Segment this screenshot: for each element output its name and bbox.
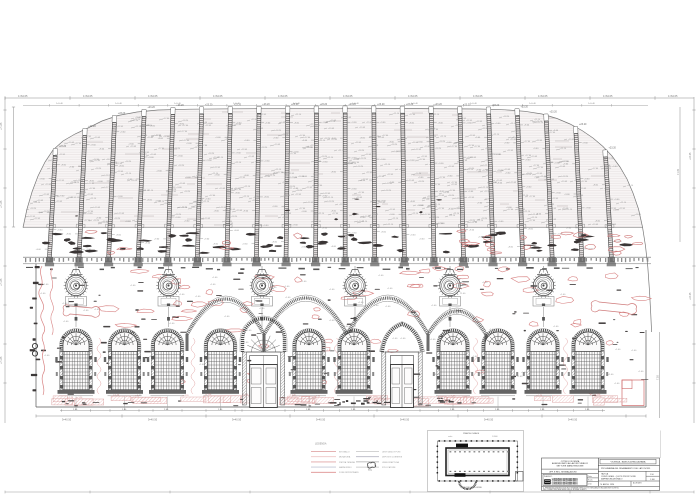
svg-text:+21.10: +21.10 — [522, 195, 529, 197]
svg-text:+17.64: +17.64 — [358, 192, 365, 194]
svg-text:+18.20: +18.20 — [358, 150, 365, 152]
svg-text:PIANTA CHIAVE: PIANTA CHIAVE — [463, 432, 480, 435]
svg-text:+17.64: +17.64 — [299, 208, 306, 210]
svg-text:+19.43: +19.43 — [118, 213, 125, 215]
svg-text:+19.43: +19.43 — [568, 139, 575, 141]
svg-text:+21.10: +21.10 — [453, 213, 460, 215]
svg-text:+18.20: +18.20 — [182, 120, 189, 122]
svg-text:+9.60: +9.60 — [272, 206, 278, 208]
svg-text:+22.05: +22.05 — [227, 223, 234, 225]
svg-text:+1.40: +1.40 — [329, 289, 335, 291]
svg-text:+9.60: +9.60 — [158, 138, 164, 140]
svg-text:+23.20: +23.20 — [59, 145, 67, 148]
svg-text:+18.20: +18.20 — [486, 175, 493, 177]
svg-text:+17.64: +17.64 — [562, 161, 569, 163]
svg-text:+22.05: +22.05 — [372, 214, 379, 216]
svg-text:+9.60: +9.60 — [505, 173, 511, 175]
svg-text:+9.60: +9.60 — [215, 137, 221, 139]
svg-text:+7.145: +7.145 — [0, 278, 3, 286]
svg-text:+22.05: +22.05 — [53, 196, 60, 198]
svg-text:+19.43: +19.43 — [504, 169, 511, 171]
svg-text:+22.05: +22.05 — [324, 193, 331, 195]
svg-text:+9.60: +9.60 — [175, 217, 181, 219]
svg-text:+17.64: +17.64 — [537, 167, 544, 169]
svg-text:+9.60: +9.60 — [177, 155, 183, 157]
svg-text:+9.60: +9.60 — [148, 157, 154, 159]
svg-text:+9.60: +9.60 — [466, 123, 472, 125]
svg-text:+19.43: +19.43 — [366, 122, 373, 124]
svg-text:+1.40: +1.40 — [169, 323, 175, 325]
svg-text:+9.60: +9.60 — [351, 232, 357, 234]
svg-text:+21.10: +21.10 — [318, 213, 325, 215]
svg-text:1=5.40: 1=5.40 — [115, 103, 123, 105]
svg-text:+9.60: +9.60 — [99, 149, 105, 151]
svg-text:+18.20: +18.20 — [51, 168, 58, 170]
svg-text:5=40.50: 5=40.50 — [232, 419, 242, 422]
svg-text:+17.64: +17.64 — [581, 181, 588, 183]
svg-text:+19.43: +19.43 — [219, 188, 226, 190]
svg-text:+9.60: +9.60 — [147, 199, 153, 201]
svg-text:+17.64: +17.64 — [209, 195, 216, 197]
svg-text:+1.40: +1.40 — [63, 321, 69, 323]
svg-text:+23.20: +23.20 — [147, 106, 155, 109]
svg-text:rc 1.20: rc 1.20 — [183, 394, 189, 397]
svg-text:5=40.50: 5=40.50 — [484, 419, 494, 422]
svg-text:+22.05: +22.05 — [412, 142, 419, 144]
svg-text:+22.05: +22.05 — [466, 120, 473, 122]
svg-text:rc 1.20: rc 1.20 — [113, 393, 119, 396]
svg-text:+17.64: +17.64 — [89, 188, 96, 190]
svg-text:+22.05: +22.05 — [448, 166, 455, 168]
svg-text:+18.20: +18.20 — [321, 156, 328, 158]
svg-text:+22.05: +22.05 — [315, 161, 322, 163]
svg-text:+22.05: +22.05 — [389, 209, 396, 211]
svg-text:+19.43: +19.43 — [213, 157, 220, 159]
svg-text:+21.10: +21.10 — [181, 207, 188, 209]
svg-text:+17.64: +17.64 — [491, 182, 498, 184]
svg-text:+23.20: +23.20 — [406, 103, 414, 106]
svg-text:+22.05: +22.05 — [395, 151, 402, 153]
svg-text:+21.10: +21.10 — [510, 123, 517, 125]
svg-text:+17.64: +17.64 — [158, 148, 165, 150]
svg-text:+19.43: +19.43 — [364, 216, 371, 218]
svg-text:CURVE GRADI - QUOTE PROSP. NOR: CURVE GRADI - QUOTE PROSP. NORD — [601, 475, 637, 478]
svg-text:+18.20: +18.20 — [324, 138, 331, 140]
svg-text:+21.10: +21.10 — [136, 219, 143, 221]
svg-text:+18.20: +18.20 — [175, 214, 182, 216]
svg-text:+24.05: +24.05 — [689, 292, 692, 300]
svg-text:+18.20: +18.20 — [296, 190, 303, 192]
svg-text:+9.60: +9.60 — [351, 122, 357, 124]
svg-text:+18.20: +18.20 — [435, 148, 442, 150]
svg-text:+21.10: +21.10 — [158, 201, 165, 203]
svg-text:+23.20: +23.20 — [118, 112, 126, 115]
svg-text:+21.10: +21.10 — [433, 114, 440, 116]
svg-text:+19.43: +19.43 — [515, 130, 522, 132]
svg-text:+9.60: +9.60 — [322, 161, 328, 163]
svg-text:+9.60: +9.60 — [418, 177, 424, 179]
svg-text:+1.40: +1.40 — [83, 310, 89, 312]
svg-text:+9.60: +9.60 — [244, 140, 250, 142]
svg-text:rc 1.20: rc 1.20 — [76, 396, 82, 399]
svg-text:+1.40: +1.40 — [387, 288, 393, 290]
svg-text:1=64.05: 1=64.05 — [538, 94, 548, 98]
svg-text:+19.43: +19.43 — [87, 194, 94, 196]
svg-text:+22.05: +22.05 — [536, 173, 543, 175]
svg-text:+17.64: +17.64 — [84, 220, 91, 222]
svg-text:+9.60: +9.60 — [87, 213, 93, 215]
svg-text:+18.20: +18.20 — [125, 161, 132, 163]
svg-text:+23.20: +23.20 — [579, 123, 587, 126]
svg-text:+9.60: +9.60 — [446, 142, 452, 144]
svg-text:+21.10: +21.10 — [361, 221, 368, 223]
svg-text:+18.20: +18.20 — [429, 128, 436, 130]
svg-text:+19.43: +19.43 — [548, 204, 555, 206]
svg-text:rc 1.20: rc 1.20 — [449, 394, 455, 397]
svg-text:+19.43: +19.43 — [195, 205, 202, 207]
svg-text:MURATURA: MURATURA — [339, 456, 351, 459]
svg-text:+23.20: +23.20 — [609, 147, 617, 150]
svg-text:+17.64: +17.64 — [230, 125, 237, 127]
svg-text:scala: scala — [448, 436, 452, 438]
svg-text:+17.64: +17.64 — [141, 117, 148, 119]
svg-text:+9.60: +9.60 — [117, 196, 123, 198]
svg-text:+17.64: +17.64 — [524, 141, 531, 143]
svg-text:+9.60: +9.60 — [97, 181, 103, 183]
svg-text:+9.60: +9.60 — [36, 249, 42, 251]
svg-text:+9.60: +9.60 — [614, 199, 620, 201]
svg-text:+19.43: +19.43 — [592, 224, 599, 226]
svg-text:+24.05: +24.05 — [689, 152, 692, 160]
svg-text:+19.43: +19.43 — [179, 183, 186, 185]
svg-text:+21.10: +21.10 — [327, 157, 334, 159]
svg-text:+17.64: +17.64 — [549, 132, 556, 134]
svg-text:+17.64: +17.64 — [192, 207, 199, 209]
svg-text:+23.20: +23.20 — [492, 104, 500, 107]
svg-text:1=5.40: 1=5.40 — [56, 103, 64, 105]
svg-text:+22.05: +22.05 — [619, 208, 626, 210]
svg-text:+9.60: +9.60 — [526, 186, 532, 188]
svg-text:+21.10: +21.10 — [203, 201, 210, 203]
svg-text:+18.20: +18.20 — [93, 220, 100, 222]
svg-text:LEGENDA: LEGENDA — [315, 443, 327, 446]
svg-text:+18.20: +18.20 — [174, 148, 181, 150]
svg-text:+18.20: +18.20 — [184, 191, 191, 193]
svg-text:rc 1.20: rc 1.20 — [133, 394, 139, 397]
svg-text:+23.20: +23.20 — [234, 103, 242, 106]
svg-text:+19.43: +19.43 — [248, 156, 255, 158]
svg-text:+19.43: +19.43 — [283, 122, 290, 124]
svg-text:+17.64: +17.64 — [439, 177, 446, 179]
svg-text:+9.60: +9.60 — [243, 211, 249, 213]
svg-text:+9.60: +9.60 — [566, 228, 572, 230]
svg-text:+18.20: +18.20 — [525, 174, 532, 176]
svg-text:1=64.05: 1=64.05 — [213, 94, 223, 98]
svg-text:+19.43: +19.43 — [353, 159, 360, 161]
svg-text:+19.43: +19.43 — [559, 166, 566, 168]
svg-text:5=40.50: 5=40.50 — [148, 419, 158, 422]
svg-text:+21.10: +21.10 — [143, 190, 150, 192]
svg-text:+23.20: +23.20 — [549, 111, 557, 114]
svg-text:+17.64: +17.64 — [201, 145, 208, 147]
svg-text:+18.20: +18.20 — [485, 148, 492, 150]
svg-text:+17.64: +17.64 — [155, 135, 162, 137]
svg-text:+19.43: +19.43 — [550, 208, 557, 210]
svg-text:+22.05: +22.05 — [143, 152, 150, 154]
svg-text:+23.20: +23.20 — [205, 104, 213, 107]
svg-text:+18.20: +18.20 — [131, 180, 138, 182]
svg-text:+19.43: +19.43 — [236, 210, 243, 212]
svg-text:+18.20: +18.20 — [43, 211, 50, 213]
svg-text:+22.05: +22.05 — [476, 121, 483, 123]
svg-text:+19.43: +19.43 — [252, 200, 259, 202]
svg-text:DEL COMMITTENTE AI SENSI DELLE: DEL COMMITTENTE AI SENSI DELLE NORME VIG… — [543, 488, 587, 491]
svg-text:+21.10: +21.10 — [566, 209, 573, 211]
svg-text:+21.10: +21.10 — [392, 218, 399, 220]
svg-text:+18.20: +18.20 — [485, 160, 492, 162]
svg-text:+9.60: +9.60 — [533, 148, 539, 150]
svg-text:+9.60: +9.60 — [116, 234, 122, 236]
svg-text:+9.60: +9.60 — [381, 232, 387, 234]
svg-text:+9.60: +9.60 — [419, 239, 425, 241]
svg-text:+9.60: +9.60 — [475, 137, 481, 139]
svg-text:+1.40: +1.40 — [44, 355, 50, 357]
svg-text:+17.64: +17.64 — [449, 190, 456, 192]
svg-text:+1.40: +1.40 — [385, 306, 391, 308]
svg-text:+1.40: +1.40 — [246, 330, 252, 332]
svg-text:5=40.50: 5=40.50 — [568, 419, 578, 422]
svg-text:+18.20: +18.20 — [255, 161, 262, 163]
svg-text:+9.60: +9.60 — [380, 159, 386, 161]
svg-text:+17.64: +17.64 — [545, 221, 552, 223]
svg-text:+22.05: +22.05 — [552, 198, 559, 200]
svg-text:+9.60: +9.60 — [184, 220, 190, 222]
svg-text:+18.20: +18.20 — [275, 130, 282, 132]
svg-text:+22.05: +22.05 — [117, 171, 124, 173]
svg-text:+9.60: +9.60 — [61, 165, 67, 167]
svg-text:+9.60: +9.60 — [156, 170, 162, 172]
svg-text:+19.43: +19.43 — [580, 188, 587, 190]
svg-text:+1.40: +1.40 — [301, 281, 307, 283]
svg-text:+1.40: +1.40 — [224, 316, 230, 318]
svg-text:+1.40: +1.40 — [431, 305, 437, 307]
svg-text:PIETRA TENERA: PIETRA TENERA — [339, 461, 355, 464]
svg-text:+19.43: +19.43 — [457, 207, 464, 209]
svg-text:+22.05: +22.05 — [102, 221, 109, 223]
svg-text:+18.20: +18.20 — [469, 220, 476, 222]
svg-text:+9.60: +9.60 — [235, 193, 241, 195]
svg-text:+22.05: +22.05 — [604, 188, 611, 190]
svg-text:+18.20: +18.20 — [284, 195, 291, 197]
svg-text:+19.43: +19.43 — [94, 137, 101, 139]
svg-text:+21.10: +21.10 — [484, 165, 491, 167]
svg-text:1=64.05: 1=64.05 — [343, 94, 353, 98]
svg-text:+22.05: +22.05 — [379, 202, 386, 204]
svg-text:+9.60: +9.60 — [69, 166, 75, 168]
svg-text:+18.20: +18.20 — [391, 144, 398, 146]
svg-text:+19.43: +19.43 — [561, 181, 568, 183]
svg-text:PROGRAMMA DEL RISANAMENTO DEL: PROGRAMMA DEL RISANAMENTO DEL LATO NORD — [601, 467, 651, 470]
svg-text:+21.10: +21.10 — [319, 140, 326, 142]
svg-text:+17.64: +17.64 — [592, 168, 599, 170]
svg-text:+19.43: +19.43 — [386, 183, 393, 185]
svg-text:rc 1.20: rc 1.20 — [67, 396, 73, 399]
svg-text:CONSORZIO ARTIGIANI REST.: CONSORZIO ARTIGIANI REST. — [552, 482, 579, 485]
svg-text:+18.20: +18.20 — [164, 203, 171, 205]
svg-text:+21.10: +21.10 — [243, 196, 250, 198]
svg-text:1=5.40: 1=5.40 — [588, 103, 596, 105]
svg-text:5=40.50: 5=40.50 — [400, 419, 410, 422]
svg-text:1:100: 1:100 — [650, 479, 655, 481]
svg-text:rc 1.20: rc 1.20 — [595, 395, 601, 398]
svg-text:+9.60: +9.60 — [528, 228, 534, 230]
svg-text:+22.05: +22.05 — [547, 162, 554, 164]
svg-text:+19.43: +19.43 — [456, 198, 463, 200]
svg-text:+22.05: +22.05 — [214, 167, 221, 169]
svg-text:+7.145: +7.145 — [0, 356, 3, 364]
svg-text:+23.20: +23.20 — [88, 125, 96, 128]
svg-text:1:2000: 1:2000 — [492, 436, 498, 438]
svg-text:+9.60: +9.60 — [524, 125, 530, 127]
svg-text:+22.05: +22.05 — [288, 173, 295, 175]
svg-text:+19.43: +19.43 — [470, 157, 477, 159]
svg-text:+17.64: +17.64 — [577, 195, 584, 197]
svg-text:+22.05: +22.05 — [70, 197, 77, 199]
svg-text:+22.05: +22.05 — [421, 156, 428, 158]
svg-text:+9.60: +9.60 — [525, 160, 531, 162]
svg-text:+19.43: +19.43 — [610, 224, 617, 226]
svg-text:+9.60: +9.60 — [585, 208, 591, 210]
svg-text:+9.60: +9.60 — [331, 171, 337, 173]
svg-text:+9.60: +9.60 — [417, 142, 423, 144]
svg-text:+9.60: +9.60 — [120, 132, 126, 134]
svg-text:1=64.05: 1=64.05 — [603, 94, 613, 98]
svg-text:+17.64: +17.64 — [507, 209, 514, 211]
svg-text:+17.64: +17.64 — [353, 162, 360, 164]
svg-text:+21.10: +21.10 — [620, 202, 627, 204]
svg-text:1=64.05: 1=64.05 — [473, 94, 483, 98]
svg-text:+21.10: +21.10 — [269, 175, 276, 177]
svg-text:+1.40: +1.40 — [631, 350, 637, 352]
svg-text:+17.64: +17.64 — [163, 118, 170, 120]
svg-text:+9.60: +9.60 — [593, 185, 599, 187]
svg-text:+9.60: +9.60 — [504, 143, 510, 145]
svg-text:+18.20: +18.20 — [95, 168, 102, 170]
svg-text:+17.64: +17.64 — [307, 147, 314, 149]
svg-text:rc 1.20: rc 1.20 — [314, 395, 320, 398]
svg-text:ZONE RIPRISTINATE: ZONE RIPRISTINATE — [339, 471, 359, 474]
svg-text:+22.05: +22.05 — [519, 209, 526, 211]
svg-text:+23.20: +23.20 — [262, 103, 270, 106]
svg-text:MARMORINO: MARMORINO — [339, 466, 352, 469]
svg-text:+18.20: +18.20 — [231, 216, 238, 218]
svg-text:+19.43: +19.43 — [487, 209, 494, 211]
svg-text:+19.43: +19.43 — [196, 175, 203, 177]
svg-text:DEPOSITI COERENTI: DEPOSITI COERENTI — [382, 457, 403, 459]
svg-text:+9.60: +9.60 — [322, 122, 328, 124]
svg-text:+23.20: +23.20 — [320, 103, 328, 106]
svg-text:+9.60: +9.60 — [264, 161, 270, 163]
svg-text:+21.10: +21.10 — [493, 134, 500, 136]
svg-text:+22.05: +22.05 — [355, 142, 362, 144]
svg-text:+9.60: +9.60 — [57, 229, 63, 231]
svg-text:+22.05: +22.05 — [295, 194, 302, 196]
svg-text:+21.10: +21.10 — [282, 134, 289, 136]
svg-text:+9.60: +9.60 — [555, 193, 561, 195]
svg-text:+9.60: +9.60 — [469, 230, 475, 232]
svg-text:+21.10: +21.10 — [531, 217, 538, 219]
svg-text:+21.10: +21.10 — [111, 162, 118, 164]
svg-text:+22.05: +22.05 — [458, 142, 465, 144]
svg-text:+19.43: +19.43 — [424, 146, 431, 148]
svg-text:+18.20: +18.20 — [114, 218, 121, 220]
svg-text:+18.20: +18.20 — [289, 186, 296, 188]
svg-text:+17.64: +17.64 — [525, 155, 532, 157]
svg-text:+23.20: +23.20 — [434, 103, 442, 106]
svg-text:1:50: 1:50 — [588, 483, 592, 485]
svg-text:+22.05: +22.05 — [170, 191, 177, 193]
svg-text:+17.64: +17.64 — [419, 159, 426, 161]
svg-text:+9.60: +9.60 — [497, 182, 503, 184]
svg-text:+18.20: +18.20 — [415, 173, 422, 175]
svg-text:+22.05: +22.05 — [310, 124, 317, 126]
svg-text:+19.43: +19.43 — [37, 200, 44, 202]
svg-text:+19.43: +19.43 — [548, 179, 555, 181]
svg-text:+9.60: +9.60 — [265, 123, 271, 125]
svg-text:+18.20: +18.20 — [30, 208, 37, 210]
svg-text:+1.40: +1.40 — [614, 383, 620, 385]
svg-text:+21.10: +21.10 — [449, 215, 456, 217]
svg-text:+17.64: +17.64 — [424, 214, 431, 216]
svg-text:+18.20: +18.20 — [106, 159, 113, 161]
svg-text:+9.60: +9.60 — [39, 178, 45, 180]
svg-text:+1.40: +1.40 — [400, 338, 406, 340]
svg-text:+1.40: +1.40 — [517, 376, 523, 378]
svg-text:+17.64: +17.64 — [163, 136, 170, 138]
svg-text:firma: firma — [368, 470, 372, 472]
svg-text:+22.05: +22.05 — [417, 205, 424, 207]
svg-text:1:50: 1:50 — [650, 474, 654, 476]
svg-text:Data: Data — [588, 475, 592, 478]
svg-text:+9.60: +9.60 — [213, 244, 219, 246]
svg-text:+22.05: +22.05 — [362, 179, 369, 181]
svg-text:+17.64: +17.64 — [235, 189, 242, 191]
svg-text:+22.05: +22.05 — [135, 117, 142, 119]
svg-text:LINEE FRATTURA: LINEE FRATTURA — [382, 461, 400, 464]
svg-text:+9.60: +9.60 — [448, 208, 454, 210]
svg-text:+18.20: +18.20 — [503, 116, 510, 118]
svg-text:+21.10: +21.10 — [338, 150, 345, 152]
svg-text:+18.20: +18.20 — [52, 160, 59, 162]
svg-text:+9.60: +9.60 — [410, 201, 416, 203]
svg-text:+19.43: +19.43 — [574, 180, 581, 182]
svg-text:+9.60: +9.60 — [498, 221, 504, 223]
svg-text:+1.40: +1.40 — [378, 275, 384, 277]
svg-text:+17.64: +17.64 — [182, 125, 189, 127]
svg-text:+9.60: +9.60 — [612, 166, 618, 168]
svg-text:+22.05: +22.05 — [34, 218, 41, 220]
svg-text:+19.43: +19.43 — [531, 156, 538, 158]
svg-text:+22.05: +22.05 — [306, 187, 313, 189]
svg-text:+1.40: +1.40 — [179, 294, 185, 296]
svg-text:+9.60: +9.60 — [264, 197, 270, 199]
svg-text:+21.10: +21.10 — [440, 136, 447, 138]
svg-text:+21.10: +21.10 — [327, 197, 334, 199]
svg-text:+19.43: +19.43 — [331, 139, 338, 141]
svg-text:+1.40: +1.40 — [195, 296, 201, 298]
svg-text:+1.40: +1.40 — [43, 284, 49, 286]
svg-text:+18.20: +18.20 — [562, 176, 569, 178]
